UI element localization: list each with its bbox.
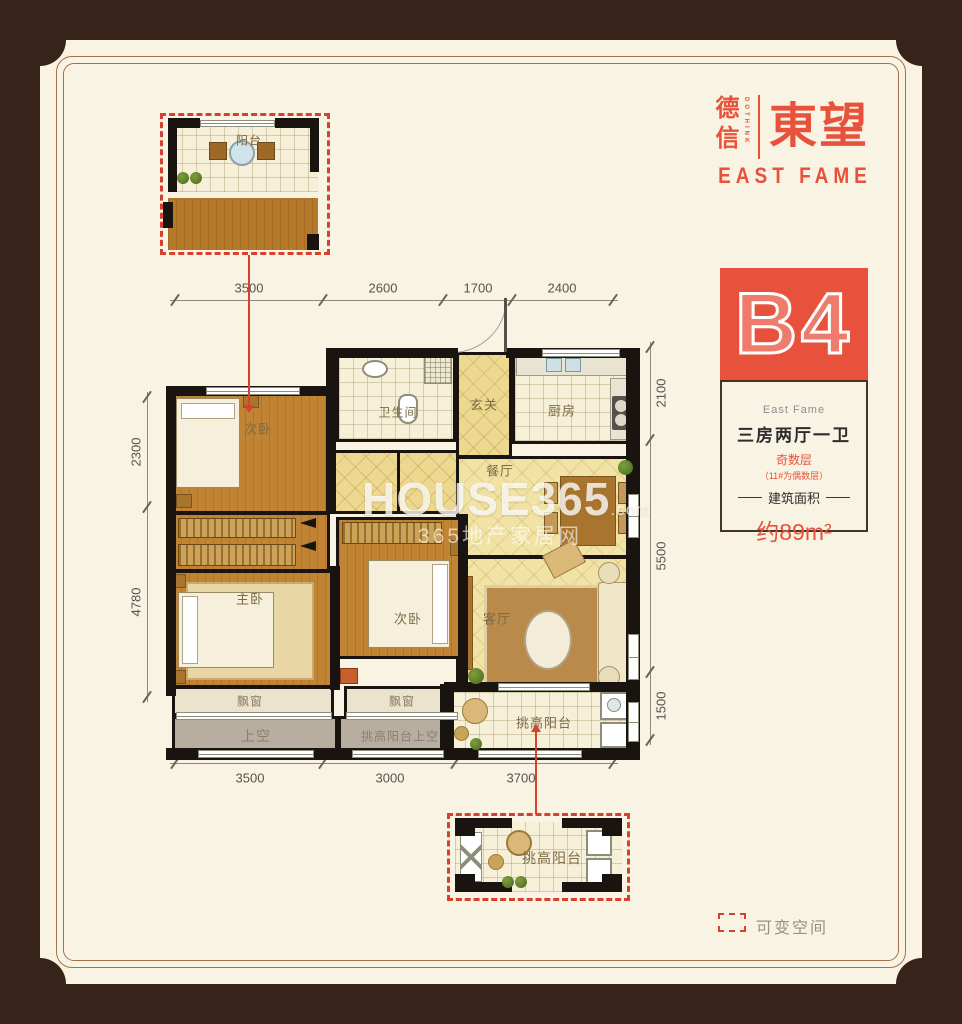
wall-segment xyxy=(626,348,640,760)
dim-value: 4780 xyxy=(129,588,144,617)
dim-line-top xyxy=(170,300,618,301)
window xyxy=(198,750,314,758)
wall-segment xyxy=(326,348,458,358)
unit-project: East Fame xyxy=(722,404,866,416)
room-label-bay-mid: 飘窗 xyxy=(389,693,415,710)
kitchen-sink xyxy=(546,358,562,372)
wall-segment xyxy=(326,392,336,514)
bed-pillows xyxy=(182,596,198,664)
room-label-void-mid: 挑高阳台上空 xyxy=(361,728,439,745)
unit-floor-note-detail: （11#为偶数层） xyxy=(722,469,866,482)
wall-segment xyxy=(310,124,319,172)
room-label-tall-balcony-inset: 挑高阳台 xyxy=(522,848,582,868)
room-label-bed-top: 次卧 xyxy=(244,419,272,438)
room-label-entry: 玄关 xyxy=(470,395,498,414)
passage-arrow-icon xyxy=(300,518,316,528)
bathroom-sink xyxy=(362,360,388,378)
unit-area-value: 约89m² xyxy=(722,513,866,547)
wall-segment xyxy=(163,202,173,228)
dim-line-left xyxy=(147,392,148,702)
dim-value: 1500 xyxy=(654,692,669,721)
window xyxy=(346,712,458,720)
room-label-bath: 卫生间 xyxy=(378,404,417,421)
wall-segment xyxy=(506,348,516,358)
wall-segment xyxy=(326,348,336,396)
kitchen-sink xyxy=(565,358,581,372)
potted-plant xyxy=(470,738,482,750)
frame-corner xyxy=(40,958,66,984)
room-label-void-left: 上空 xyxy=(241,726,271,746)
wall-segment xyxy=(168,124,177,192)
dim-line-bottom xyxy=(170,763,618,764)
balcony-wood-deck xyxy=(168,198,318,250)
variant-connector-arrow xyxy=(531,724,541,732)
coffee-table xyxy=(524,610,572,670)
dim-value: 1700 xyxy=(464,281,493,296)
logo-divider xyxy=(758,95,760,159)
room-label-balcony: 阳台 xyxy=(236,132,262,149)
unit-code-badge: B4 xyxy=(720,268,868,380)
tall-balcony-variant-inset: 挑高阳台 xyxy=(447,813,630,901)
room-label-master: 主卧 xyxy=(236,589,264,608)
unit-info-card: East Fame 三房两厅一卫 奇数层 （11#为偶数层） 建筑面积 约89m… xyxy=(720,380,868,532)
frame-corner xyxy=(896,958,922,984)
shower xyxy=(424,356,452,384)
wall-segment xyxy=(455,874,475,892)
balcony-stool xyxy=(454,726,469,741)
window xyxy=(498,683,590,691)
brand-cn-sub: DOTHINK xyxy=(743,97,749,145)
window xyxy=(206,387,300,395)
wall-segment xyxy=(562,818,604,828)
variant-connector-line xyxy=(248,255,250,407)
wall-segment xyxy=(602,818,622,836)
nightstand xyxy=(176,494,192,508)
dim-value: 2600 xyxy=(369,281,398,296)
dim-value: 2300 xyxy=(129,438,144,467)
wall-segment xyxy=(166,386,176,696)
frame-corner xyxy=(40,40,66,66)
window xyxy=(542,349,620,357)
brand-en: EAST FAME xyxy=(712,164,878,189)
window xyxy=(478,750,582,758)
room-label-tall-balcony: 挑高阳台 xyxy=(516,713,572,732)
balcony-variant-inset: 阳台 xyxy=(160,113,330,255)
watermark-domain: .com xyxy=(610,500,651,519)
rule-right xyxy=(826,497,850,498)
washing-machine-door xyxy=(607,698,621,712)
variant-connector-line xyxy=(535,730,537,814)
entry-door-swing xyxy=(452,298,507,353)
dim-value: 5500 xyxy=(654,542,669,571)
watermark-tagline: 365地产家居网 xyxy=(418,520,582,550)
potted-plant xyxy=(502,876,514,888)
wall-segment xyxy=(330,566,340,690)
dim-value: 2400 xyxy=(548,281,577,296)
room-label-bed-mid: 次卧 xyxy=(394,609,422,628)
side-table xyxy=(598,562,620,584)
potted-plant xyxy=(468,668,484,684)
balcony-chair xyxy=(462,698,488,724)
wall-segment xyxy=(455,818,475,836)
laundry-sink xyxy=(600,722,628,748)
wardrobe-run xyxy=(178,518,296,538)
dim-value: 3000 xyxy=(376,771,405,786)
potted-plant xyxy=(515,876,527,888)
room-label-living: 客厅 xyxy=(483,609,511,628)
wall-segment xyxy=(602,874,622,892)
ottoman xyxy=(340,668,358,684)
room-label-bay-left: 飘窗 xyxy=(237,693,263,710)
window xyxy=(352,750,444,758)
variable-space-legend-swatch xyxy=(718,913,746,932)
potted-plant xyxy=(190,172,202,184)
wardrobe-run xyxy=(178,544,296,566)
unit-code: B4 xyxy=(735,281,853,367)
unit-area-label: 建筑面积 xyxy=(768,488,820,507)
dim-line-right xyxy=(650,342,651,745)
dim-value: 3500 xyxy=(236,771,265,786)
variant-connector-arrow xyxy=(244,405,254,413)
balcony-stool xyxy=(488,854,504,870)
bed-pillows xyxy=(432,564,448,644)
variable-space-legend-label: 可变空间 xyxy=(756,914,828,938)
window xyxy=(628,634,639,680)
brand-cn: 德信 xyxy=(712,95,736,155)
frame-corner xyxy=(896,40,922,66)
brand-main: 東望 xyxy=(769,95,869,159)
window xyxy=(628,702,639,742)
unit-floor-note: 奇数层 xyxy=(722,451,866,468)
entry-door-leaf xyxy=(504,298,507,352)
balcony-chair xyxy=(209,142,227,160)
watermark-logo: HOUSE365.com xyxy=(362,472,651,526)
wall-segment xyxy=(307,234,319,250)
window xyxy=(176,712,332,720)
unit-layout: 三房两厅一卫 xyxy=(722,421,866,446)
wall-segment xyxy=(474,818,512,828)
room-label-kitchen: 厨房 xyxy=(548,401,576,420)
dim-value: 2100 xyxy=(654,379,669,408)
window xyxy=(200,120,275,127)
wall-segment xyxy=(562,882,604,892)
unit-area-label-row: 建筑面积 xyxy=(722,488,866,507)
dim-value: 3700 xyxy=(507,771,536,786)
passage-arrow-icon xyxy=(300,541,316,551)
bed-pillows xyxy=(181,403,235,419)
rule-left xyxy=(738,497,762,498)
potted-plant xyxy=(177,172,189,184)
brand-logo: 德信 DOTHINK 東望 xyxy=(712,95,882,159)
